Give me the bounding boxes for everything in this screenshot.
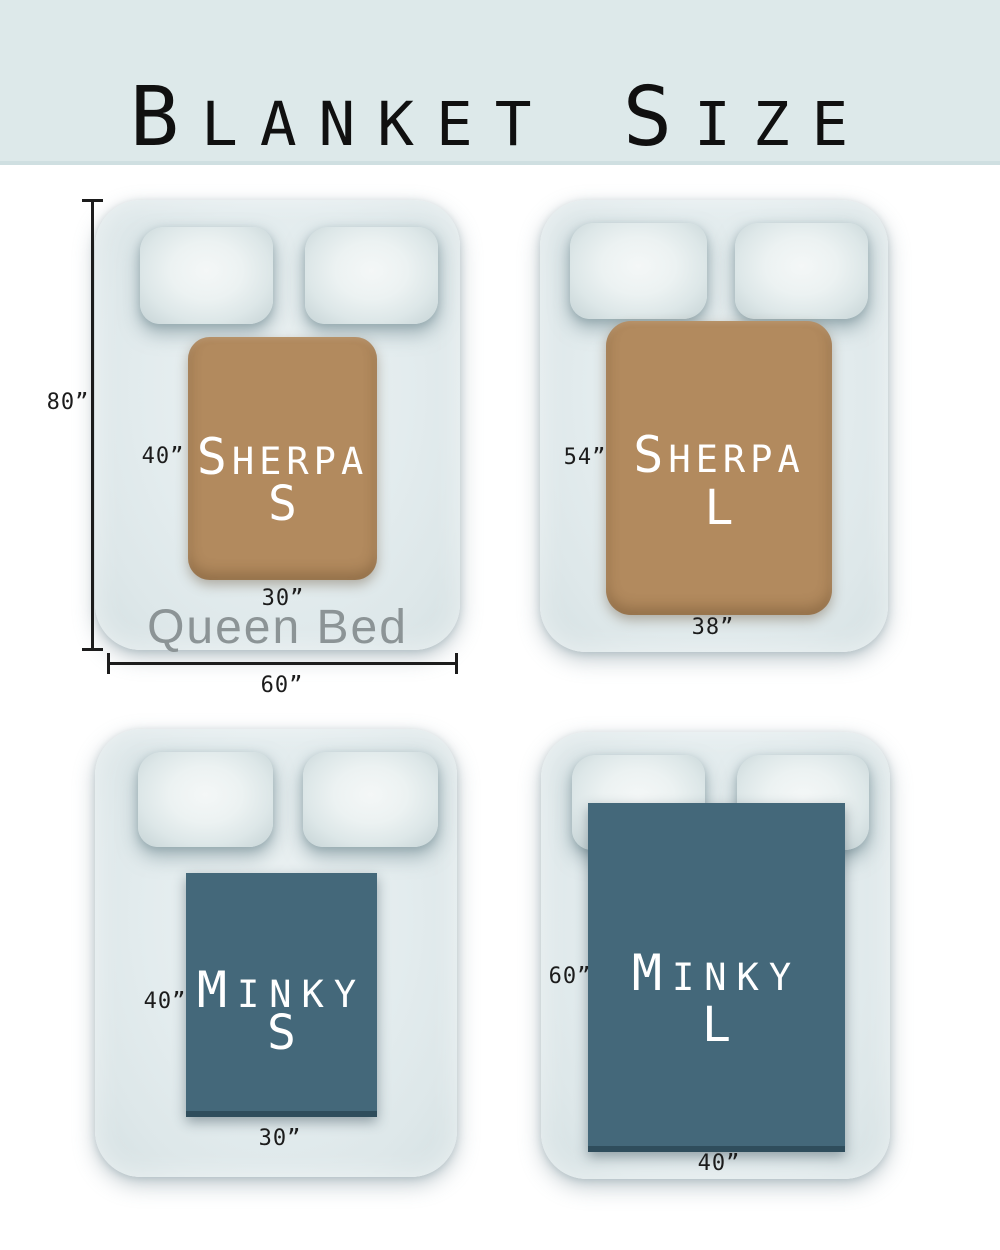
pillow-icon: [138, 752, 273, 847]
blanket-height-label: 60”: [530, 963, 610, 991]
blanket-label-rest: INKY: [672, 956, 801, 999]
page-title: BLANKET SIZE: [130, 77, 871, 159]
blanket-size-letter: L: [606, 484, 832, 532]
blanket-label-rest: HERPA: [232, 440, 368, 483]
bed-width-label: 60”: [242, 672, 322, 700]
pillow-icon: [303, 752, 438, 847]
bed-height-dimension-line: [91, 199, 94, 651]
title-rest: IZE: [694, 89, 870, 160]
blanket-width-label: 40”: [679, 1150, 759, 1178]
blanket-width-label: 38”: [673, 614, 753, 642]
pillow-icon: [305, 227, 438, 324]
title-word-blanket: BLANKET: [130, 115, 554, 153]
pillow-icon: [570, 223, 707, 319]
blanket-label-rest: HERPA: [668, 438, 804, 481]
blanket-label-initial: S: [633, 426, 668, 484]
blanket-size-letter: S: [186, 1009, 377, 1057]
blanket-label-initial: M: [632, 944, 672, 1002]
blanket-label: SHERPA: [188, 432, 377, 482]
title-initial: S: [623, 70, 694, 165]
title-rest: LANKET: [201, 89, 553, 160]
bed-name-label: Queen Bed: [95, 604, 460, 652]
blanket-sherpa-s: SHERPA S: [188, 337, 377, 580]
blanket-minky-s: MINKY S: [186, 873, 377, 1117]
title-initial: B: [130, 70, 201, 165]
bed-height-label: 80”: [28, 389, 108, 417]
blanket-size-letter: L: [588, 1001, 845, 1049]
page-root: BLANKET SIZE SHERPA S 40” 30” Queen Bed …: [0, 0, 1000, 1250]
title-word-size: SIZE: [623, 115, 871, 153]
blanket-minky-l: MINKY L: [588, 803, 845, 1152]
blanket-height-label: 54”: [545, 444, 625, 472]
blanket-size-letter: S: [188, 480, 377, 528]
blanket-sherpa-l: SHERPA L: [606, 321, 832, 615]
pillow-icon: [735, 223, 868, 319]
blanket-height-label: 40”: [123, 443, 203, 471]
blanket-label: MINKY: [588, 948, 845, 998]
pillow-icon: [140, 227, 273, 324]
blanket-height-label: 40”: [125, 988, 205, 1016]
bed-width-dimension-line: [107, 662, 458, 665]
blanket-label: SHERPA: [606, 430, 832, 480]
header: BLANKET SIZE: [0, 0, 1000, 165]
blanket-width-label: 30”: [240, 1125, 320, 1153]
